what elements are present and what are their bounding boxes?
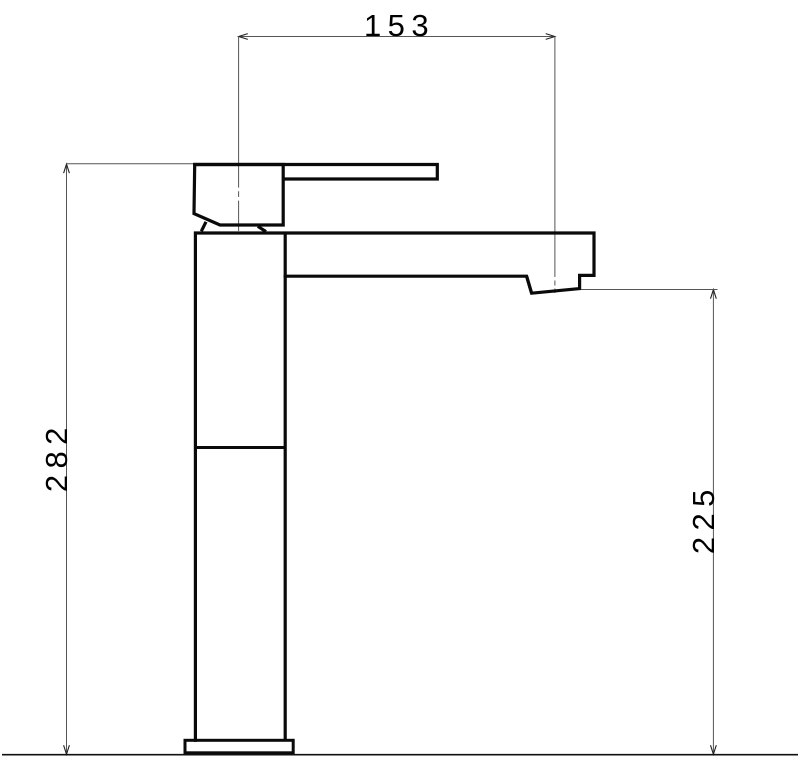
svg-text:153: 153 xyxy=(364,8,435,43)
svg-text:282: 282 xyxy=(39,421,74,492)
svg-text:225: 225 xyxy=(686,483,721,554)
